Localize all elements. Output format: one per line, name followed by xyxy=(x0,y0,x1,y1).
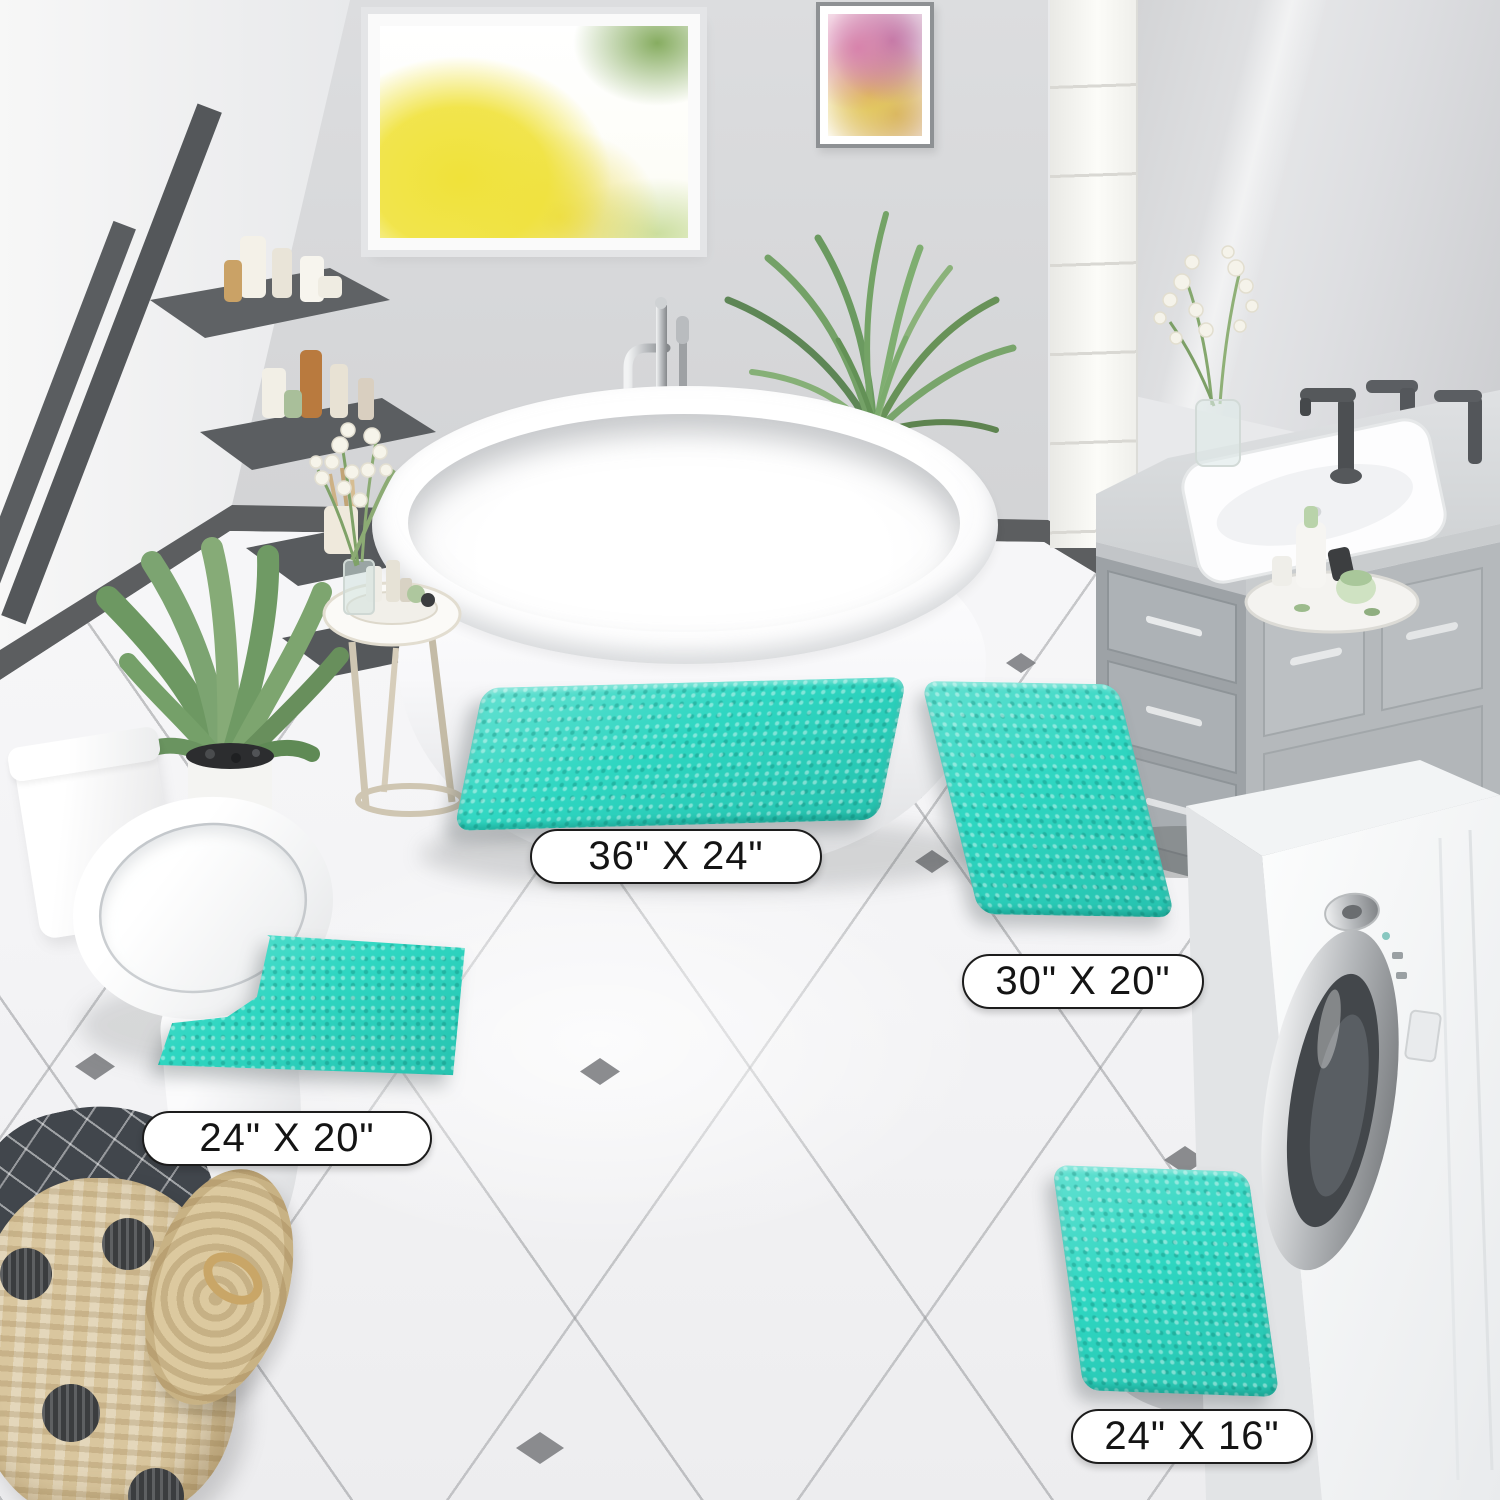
bath-mat-contour-24x20 xyxy=(150,925,470,1085)
size-label-36x24: 36" X 24" xyxy=(530,829,822,884)
side-table xyxy=(310,423,462,814)
bathroom-scene: 36" X 24" 30" X 20" 24" X 20" 24" X 16" xyxy=(0,0,1500,1500)
bath-mat-24x16 xyxy=(1052,1165,1280,1397)
bath-mat-36x24 xyxy=(454,677,907,831)
size-label-30x20: 30" X 20" xyxy=(962,954,1204,1009)
size-label-24x20: 24" X 20" xyxy=(142,1111,432,1166)
counter-vase-flowers xyxy=(1154,246,1258,466)
gladiolus-flowers xyxy=(310,423,394,566)
contour-mat-wrap xyxy=(150,925,470,1085)
size-label-24x16: 24" X 16" xyxy=(1071,1409,1313,1464)
